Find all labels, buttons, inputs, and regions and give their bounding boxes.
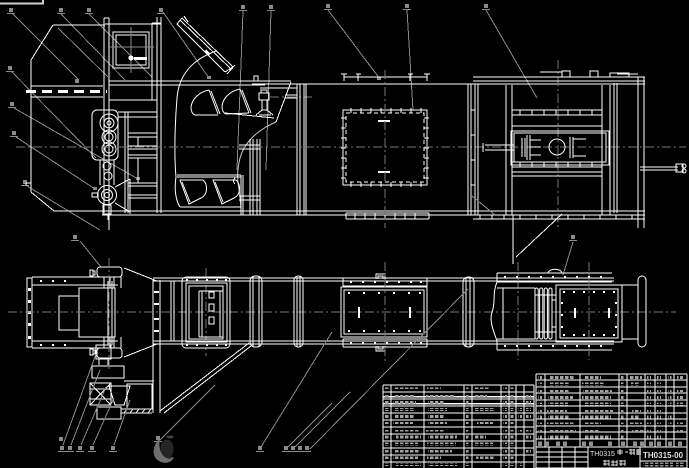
svg-text:TH0315-00: TH0315-00 [643, 451, 684, 460]
svg-text:TH0315: TH0315 [590, 451, 615, 458]
